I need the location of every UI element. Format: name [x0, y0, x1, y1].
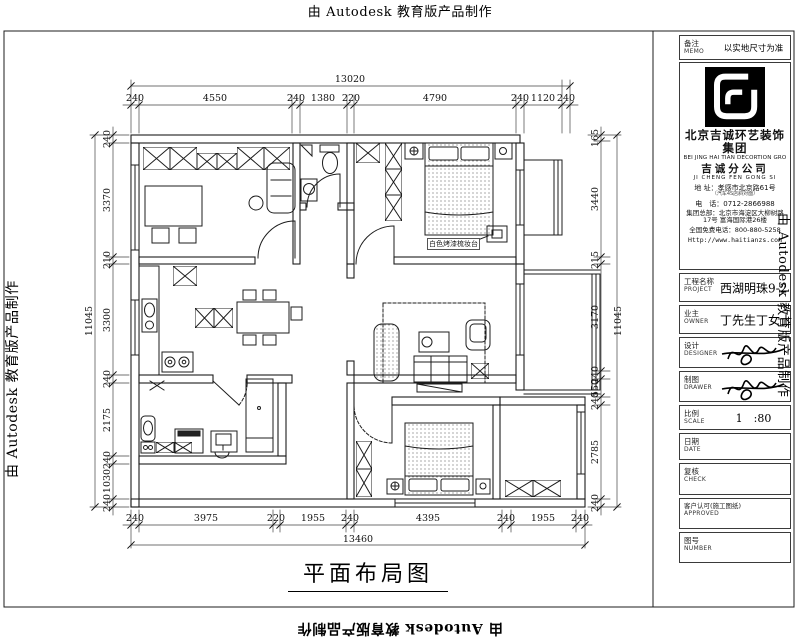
- kitchen-furniture: [139, 266, 233, 375]
- pillow: [441, 479, 469, 491]
- svg-text:240: 240: [126, 513, 144, 524]
- balcony-living: [516, 270, 600, 394]
- toilet-tank: [320, 145, 339, 152]
- svg-text:220: 220: [342, 93, 360, 104]
- svg-text:240: 240: [341, 513, 359, 524]
- svg-text:240: 240: [102, 370, 113, 388]
- monitor: [216, 434, 231, 445]
- svg-text:240: 240: [102, 494, 113, 512]
- autodesk-watermark-left: 由 Autodesk 教育版产品制作: [2, 280, 22, 478]
- svg-text:3170: 3170: [590, 305, 601, 329]
- svg-text:240: 240: [287, 93, 305, 104]
- svg-text:240: 240: [102, 130, 113, 148]
- svg-text:1030: 1030: [102, 469, 113, 493]
- scale-value: 1 :80: [720, 410, 787, 426]
- fridge: [173, 266, 197, 286]
- svg-text:1380: 1380: [311, 93, 335, 104]
- svg-text:1955: 1955: [301, 513, 325, 524]
- company-phone: 电 话：0712-2866988: [680, 200, 790, 208]
- branch-name-cn: 吉诚分公司: [680, 163, 790, 175]
- company-address-note: （汽车4S店斜对面）: [680, 192, 790, 198]
- number-row: 图号NUMBER: [679, 532, 791, 563]
- svg-text:3300: 3300: [102, 308, 113, 332]
- memo-label-en: MEMO: [684, 48, 704, 56]
- dim-left-total: 11045: [84, 306, 95, 336]
- bedroom2-furniture: [356, 423, 490, 497]
- window-se-space: [577, 412, 585, 474]
- check-row: 复核CHECK: [679, 463, 791, 495]
- autodesk-watermark-bottom: 由 Autodesk 教育版产品制作: [297, 619, 503, 639]
- vanity-annotation: 白色烤漆梳妆台: [427, 238, 480, 250]
- door-study: [258, 221, 295, 258]
- chaise: [374, 324, 399, 381]
- svg-text:215: 215: [590, 251, 601, 269]
- cad-sheet: { "watermark": { "text": "由 Autodesk 教育版…: [0, 0, 800, 639]
- branch-name-en: JI CHENG FEN GONG SI: [680, 175, 790, 181]
- room3-furniture: [141, 379, 273, 458]
- window-kitchen-left: [131, 300, 139, 355]
- nightstand: [495, 143, 512, 159]
- date-row: 日期DATE: [679, 433, 791, 460]
- svg-text:3440: 3440: [590, 187, 601, 211]
- svg-text:240: 240: [102, 451, 113, 469]
- company-website: Http://www.haitianzs.com: [680, 237, 790, 244]
- svg-text:1120: 1120: [531, 93, 555, 104]
- svg-text:4395: 4395: [416, 513, 440, 524]
- side-table: [471, 363, 489, 379]
- company-hq-line2: 17号 富海国际港26楼: [680, 217, 790, 224]
- memo-value: 以实地尺寸为准: [720, 42, 787, 54]
- living-room-furniture: [374, 303, 490, 392]
- sheet-border: [4, 31, 794, 607]
- svg-text:3370: 3370: [102, 188, 113, 212]
- dim-right-total: 11045: [613, 306, 624, 336]
- svg-text:240: 240: [590, 494, 601, 512]
- dim-top-total: 13020: [335, 74, 365, 85]
- svg-text:2175: 2175: [102, 408, 113, 432]
- svg-text:240: 240: [126, 93, 144, 104]
- window-bedroom2-bottom: [395, 499, 475, 507]
- lounge-chair: [267, 163, 295, 213]
- svg-text:4790: 4790: [423, 93, 447, 104]
- company-name-en: BEI JING HAI TIAN DECORTION GRO: [680, 155, 790, 161]
- study-desk: [145, 186, 202, 226]
- svg-text:3975: 3975: [194, 513, 218, 524]
- bedroom1-furniture: [356, 143, 512, 243]
- doors: [213, 174, 394, 443]
- drawing-title: 平面布局图: [288, 556, 448, 592]
- nightstand: [476, 479, 490, 494]
- approved-row: 客户认可(施工图纸)APPROVED: [679, 498, 791, 529]
- memo-box: 备注 MEMO 以实地尺寸为准: [679, 35, 791, 60]
- door-bedroom2: [354, 405, 392, 443]
- company-hotline: 全国免费电话：800-880-5258: [680, 227, 790, 234]
- svg-text:165: 165: [590, 129, 601, 147]
- se-space-furniture: [505, 480, 561, 497]
- scale-row: 比例SCALE 1 :80: [679, 405, 791, 430]
- memo-label-cn: 备注: [684, 39, 704, 48]
- wardrobe: [246, 379, 273, 438]
- pillow: [429, 147, 458, 160]
- bathroom-fixtures: [301, 145, 339, 201]
- sofa: [414, 356, 467, 382]
- pillow: [409, 479, 437, 491]
- svg-text:1955: 1955: [531, 513, 555, 524]
- kitchen-sink: [142, 299, 157, 332]
- dining-table: [237, 302, 289, 333]
- door-room3: [213, 379, 247, 405]
- company-logo: [701, 67, 769, 127]
- svg-text:240: 240: [557, 93, 575, 104]
- svg-text:220: 220: [267, 513, 285, 524]
- dining-furniture: [237, 290, 302, 345]
- ceiling-lamp-icon: [150, 381, 164, 390]
- bay-window-bedroom1: [516, 160, 562, 235]
- svg-text:240: 240: [590, 392, 601, 410]
- autodesk-watermark-top: 由 Autodesk 教育版产品制作: [308, 1, 492, 20]
- windows: [131, 160, 600, 507]
- svg-text:240: 240: [511, 93, 529, 104]
- side-table: [249, 196, 263, 210]
- window-study-left: [131, 165, 139, 250]
- svg-text:4550: 4550: [203, 93, 227, 104]
- coffee-table: [419, 332, 449, 352]
- svg-text:2785: 2785: [590, 440, 601, 464]
- stove: [162, 352, 193, 372]
- corner-shelf: [301, 145, 312, 156]
- dim-bottom-total: 13460: [343, 534, 373, 545]
- svg-text:240: 240: [571, 513, 589, 524]
- toilet-icon: [323, 153, 338, 174]
- svg-text:240: 240: [497, 513, 515, 524]
- svg-text:210: 210: [102, 251, 113, 269]
- pillow: [461, 147, 489, 160]
- plant: [422, 337, 432, 347]
- door-bedroom1: [356, 226, 394, 264]
- autodesk-watermark-right: 由 Autodesk 教育版产品制作: [775, 213, 794, 397]
- company-name-cn: 北京吉诚环艺装饰集团: [680, 129, 790, 155]
